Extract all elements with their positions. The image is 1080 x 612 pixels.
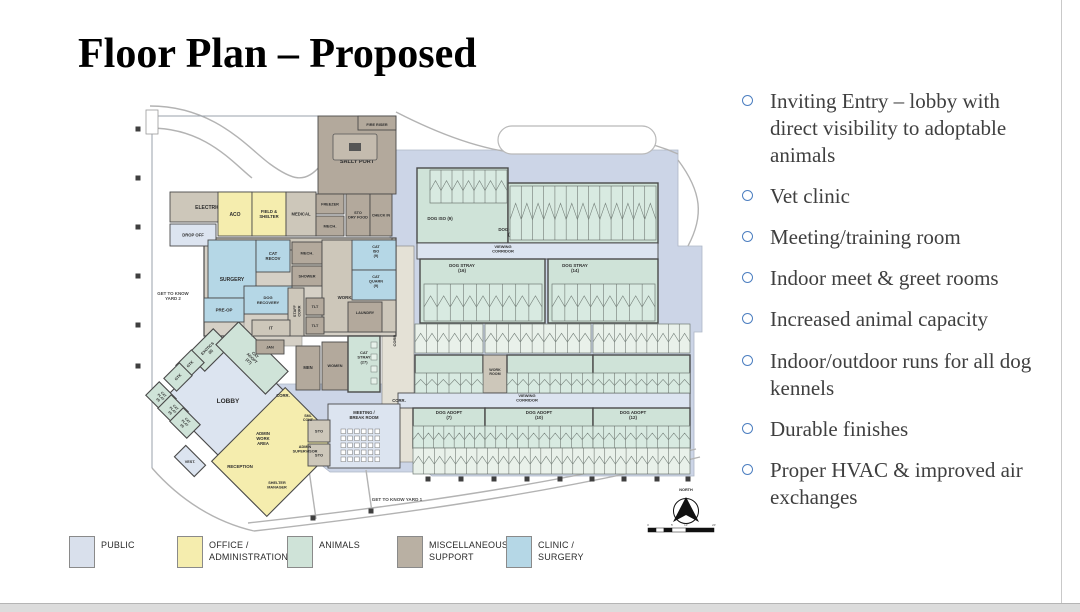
room-sto-2: STO bbox=[308, 444, 330, 466]
bullet-circle-icon bbox=[742, 190, 753, 201]
svg-text:GET TO KNOWYARD 2: GET TO KNOWYARD 2 bbox=[157, 291, 189, 301]
bullet-circle-icon bbox=[742, 272, 753, 283]
room-cat-quarn: CATQUARN(9) bbox=[352, 270, 396, 300]
kennel-stalls bbox=[415, 373, 483, 393]
legend-swatch bbox=[397, 536, 423, 568]
legend-item: OFFICE / ADMINISTRATION bbox=[177, 536, 288, 568]
bullet-text: Proper HVAC & improved air exchanges bbox=[770, 458, 1023, 509]
room-jan: JAN bbox=[256, 340, 284, 354]
kennel-stalls bbox=[593, 426, 690, 448]
bullet-circle-icon bbox=[742, 423, 753, 434]
bullet-text: Meeting/training room bbox=[770, 225, 961, 249]
legend-item: CLINIC / SURGERY bbox=[506, 536, 584, 568]
svg-text:GET TO KNOW YARD 1: GET TO KNOW YARD 1 bbox=[372, 497, 423, 502]
bullet-circle-icon bbox=[742, 231, 753, 242]
bullet-item: Increased animal capacity bbox=[740, 306, 1040, 333]
legend-swatch bbox=[177, 536, 203, 568]
kennel-stalls bbox=[510, 186, 656, 240]
column bbox=[655, 477, 660, 482]
svg-text:MECH.: MECH. bbox=[324, 223, 337, 228]
svg-text:STAFFCORR: STAFFCORR bbox=[293, 304, 301, 317]
room-viewing-corridor-2: VIEWINGCORRIDOR bbox=[398, 393, 690, 408]
svg-text:VEST.: VEST. bbox=[185, 460, 196, 464]
svg-text:RECEPTION: RECEPTION bbox=[227, 464, 253, 469]
room-medical: MEDICAL bbox=[286, 192, 316, 236]
column bbox=[525, 477, 530, 482]
kennel-stalls bbox=[415, 324, 483, 353]
svg-text:WOMEN: WOMEN bbox=[328, 364, 343, 368]
svg-text:SURGERY: SURGERY bbox=[220, 277, 245, 283]
bullet-item: Durable finishes bbox=[740, 416, 1040, 443]
svg-text:MECH.: MECH. bbox=[301, 250, 314, 255]
bullet-item: Indoor/outdoor runs for all dog kennels bbox=[740, 348, 1040, 402]
svg-text:LOBBY: LOBBY bbox=[217, 398, 240, 405]
bullet-text: Durable finishes bbox=[770, 417, 908, 441]
north-arrow-icon bbox=[673, 497, 699, 524]
scale-bar: 05'10'20' bbox=[647, 523, 716, 532]
kennel-stalls bbox=[552, 284, 655, 321]
svg-text:CORR.: CORR. bbox=[392, 334, 397, 347]
room-pre-op: PRE-OP bbox=[204, 298, 244, 322]
gate-structure bbox=[146, 110, 158, 134]
column bbox=[492, 477, 497, 482]
room-check-in: CHECK IN bbox=[370, 194, 392, 236]
room-women: WOMEN bbox=[322, 342, 348, 390]
bullet-item: Vet clinic bbox=[740, 183, 1040, 210]
bullet-item: Proper HVAC & improved air exchanges bbox=[740, 457, 1040, 511]
svg-text:NORTH: NORTH bbox=[679, 488, 693, 492]
svg-text:TLT: TLT bbox=[312, 324, 319, 328]
plan-legend: PUBLICOFFICE / ADMINISTRATIONANIMALSMISC… bbox=[0, 536, 720, 576]
bullet-text: Inviting Entry – lobby with direct visib… bbox=[770, 89, 1006, 167]
svg-text:CORR.: CORR. bbox=[276, 393, 290, 398]
column bbox=[622, 477, 627, 482]
legend-item: ANIMALS bbox=[287, 536, 360, 568]
bullet-item: Indoor meet & greet rooms bbox=[740, 265, 1040, 292]
room-shower: SHOWER bbox=[292, 266, 322, 286]
column bbox=[590, 477, 595, 482]
svg-text:STO: STO bbox=[315, 428, 323, 433]
column bbox=[136, 176, 141, 181]
site-path bbox=[678, 160, 698, 246]
vehicle bbox=[333, 134, 377, 160]
svg-text:DOG ISO (9): DOG ISO (9) bbox=[427, 216, 453, 221]
svg-text:CHECK IN: CHECK IN bbox=[372, 213, 391, 217]
legend-label: OFFICE / ADMINISTRATION bbox=[209, 539, 288, 563]
cat-condo bbox=[371, 342, 377, 348]
bullet-list: Inviting Entry – lobby with direct visib… bbox=[740, 88, 1040, 525]
bullet-circle-icon bbox=[742, 313, 753, 324]
room-dog-recovery: DOGRECOVERY bbox=[244, 286, 292, 314]
site-path bbox=[309, 470, 316, 519]
slide: LOBBYVEST.EXOTICS(8)GTKGTKCATADOPT(27)CA… bbox=[0, 0, 1080, 612]
legend-swatch bbox=[506, 536, 532, 568]
svg-text:DROP OFF: DROP OFF bbox=[182, 232, 204, 237]
bullet-circle-icon bbox=[742, 464, 753, 475]
room-aco: ACO bbox=[218, 192, 252, 236]
svg-text:SHOWER: SHOWER bbox=[298, 274, 315, 278]
svg-text:ADMINWORKAREA: ADMINWORKAREA bbox=[256, 431, 270, 446]
kennel-stalls bbox=[485, 324, 591, 353]
room-it-room: IT bbox=[252, 320, 290, 336]
slide-edge-line bbox=[1061, 0, 1062, 612]
slide-bottom-strip bbox=[0, 603, 1080, 612]
svg-text:CORR.: CORR. bbox=[392, 398, 406, 403]
svg-text:JAN: JAN bbox=[266, 345, 274, 349]
kennel-stalls bbox=[430, 170, 507, 203]
room-cat-recov: CATRECOV bbox=[256, 240, 290, 272]
bullet-item: Meeting/training room bbox=[740, 224, 1040, 251]
bullet-text: Vet clinic bbox=[770, 184, 850, 208]
svg-text:PRE-OP: PRE-OP bbox=[216, 308, 233, 313]
column bbox=[136, 225, 141, 230]
site-path bbox=[150, 128, 252, 178]
svg-text:WORKROOM: WORKROOM bbox=[489, 368, 501, 376]
cat-condo bbox=[371, 354, 377, 360]
column bbox=[686, 477, 691, 482]
room-men: MEN bbox=[296, 346, 320, 390]
column bbox=[426, 477, 431, 482]
column bbox=[311, 516, 316, 521]
site-path bbox=[150, 106, 320, 178]
room-tlt-1: TLT bbox=[306, 298, 324, 315]
drive-island bbox=[498, 126, 656, 154]
svg-text:0: 0 bbox=[647, 523, 649, 527]
room-tlt-2: TLT bbox=[306, 317, 324, 334]
bullet-circle-icon bbox=[742, 355, 753, 366]
legend-label: CLINIC / SURGERY bbox=[538, 539, 584, 563]
cat-condo bbox=[371, 366, 377, 372]
kennel-stalls bbox=[424, 284, 542, 321]
room-mech-1: MECH. bbox=[316, 216, 344, 236]
svg-text:SHELTERMANAGER: SHELTERMANAGER bbox=[267, 481, 287, 489]
svg-text:FIRE RISER: FIRE RISER bbox=[366, 123, 388, 127]
legend-swatch bbox=[287, 536, 313, 568]
svg-text:IT: IT bbox=[269, 325, 273, 330]
svg-text:MEDICAL: MEDICAL bbox=[291, 211, 311, 216]
svg-text:MEN: MEN bbox=[303, 365, 312, 370]
kennel-stalls bbox=[593, 324, 690, 353]
room-viewing-corridor-1: VIEWINGCORRIDOR bbox=[417, 243, 658, 259]
legend-label: ANIMALS bbox=[319, 539, 360, 551]
room-fire-riser: FIRE RISER bbox=[358, 116, 396, 130]
column bbox=[558, 477, 563, 482]
room-sto-dry-food: STODRY FOOD bbox=[346, 194, 370, 236]
room-vest: VEST. bbox=[174, 445, 205, 476]
svg-text:VIEWINGCORRIDOR: VIEWINGCORRIDOR bbox=[492, 244, 514, 254]
legend-label: PUBLIC bbox=[101, 539, 135, 551]
kennel-stalls bbox=[485, 426, 593, 448]
svg-text:10': 10' bbox=[684, 523, 688, 527]
bullet-text: Indoor/outdoor runs for all dog kennels bbox=[770, 349, 1031, 400]
page-title: Floor Plan – Proposed bbox=[78, 30, 477, 78]
svg-text:FIELD &SHELTER: FIELD &SHELTER bbox=[259, 209, 278, 219]
svg-text:TLT: TLT bbox=[312, 305, 319, 309]
svg-text:VIEWINGCORRIDOR: VIEWINGCORRIDOR bbox=[516, 393, 538, 403]
svg-text:5': 5' bbox=[671, 523, 674, 527]
svg-text:MEETING /BREAK ROOM: MEETING /BREAK ROOM bbox=[349, 410, 379, 420]
column bbox=[136, 127, 141, 132]
bullet-item: Inviting Entry – lobby with direct visib… bbox=[740, 88, 1040, 169]
room-cat-iso: CATISO(9) bbox=[352, 240, 396, 270]
room-laundry: LAUNDRY bbox=[348, 302, 382, 332]
legend-item: MISCELLANEOUS / SUPPORT bbox=[397, 536, 514, 568]
svg-text:20': 20' bbox=[712, 523, 716, 527]
column bbox=[136, 274, 141, 279]
bullet-text: Indoor meet & greet rooms bbox=[770, 266, 999, 290]
kennel-stalls bbox=[413, 426, 485, 448]
svg-text:ACO: ACO bbox=[229, 212, 240, 218]
site-path bbox=[366, 470, 372, 512]
room-freezer: FREEZER bbox=[316, 194, 344, 214]
svg-text:FREEZER: FREEZER bbox=[321, 202, 339, 206]
room-sto-1: STO bbox=[308, 420, 330, 442]
room-mech-2: MECH. bbox=[292, 242, 322, 264]
column bbox=[136, 323, 141, 328]
column bbox=[136, 364, 141, 369]
bullet-circle-icon bbox=[742, 95, 753, 106]
kennel-stalls bbox=[507, 373, 593, 393]
room-field-shelter: FIELD &SHELTER bbox=[252, 192, 286, 236]
column bbox=[369, 509, 374, 514]
room-work-room-2: WORKROOM bbox=[483, 355, 507, 393]
cat-condo bbox=[371, 378, 377, 384]
column bbox=[459, 477, 464, 482]
svg-text:LAUNDRY: LAUNDRY bbox=[356, 311, 375, 315]
bullet-text: Increased animal capacity bbox=[770, 307, 988, 331]
legend-item: PUBLIC bbox=[69, 536, 135, 568]
legend-swatch bbox=[69, 536, 95, 568]
kennel-stalls bbox=[413, 448, 690, 474]
legend-label: MISCELLANEOUS / SUPPORT bbox=[429, 539, 514, 563]
kennel-stalls bbox=[593, 373, 690, 393]
